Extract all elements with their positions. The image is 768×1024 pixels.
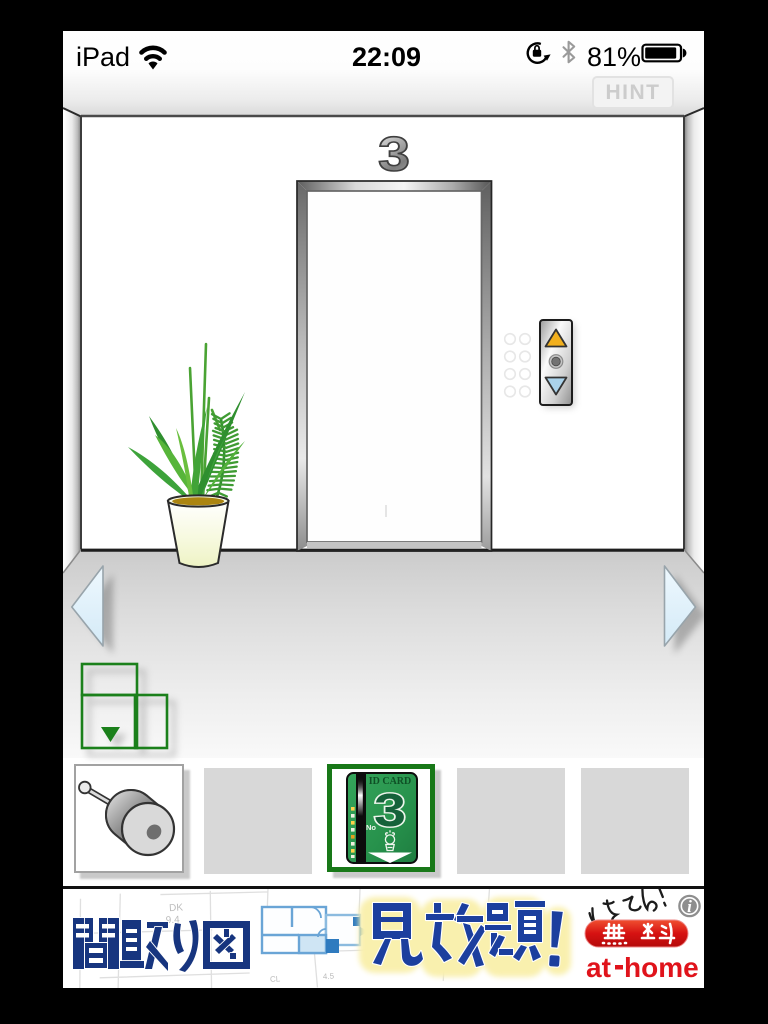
svg-text:No: No (366, 823, 376, 832)
svg-text:CL: CL (270, 974, 281, 984)
svg-text:home: home (624, 952, 699, 983)
svg-text:3: 3 (374, 785, 406, 836)
svg-text:3: 3 (378, 128, 410, 182)
svg-text:at: at (586, 952, 611, 983)
svg-text:4.5: 4.5 (323, 972, 335, 982)
svg-text:DK: DK (169, 902, 184, 914)
svg-text:i: i (687, 897, 692, 916)
